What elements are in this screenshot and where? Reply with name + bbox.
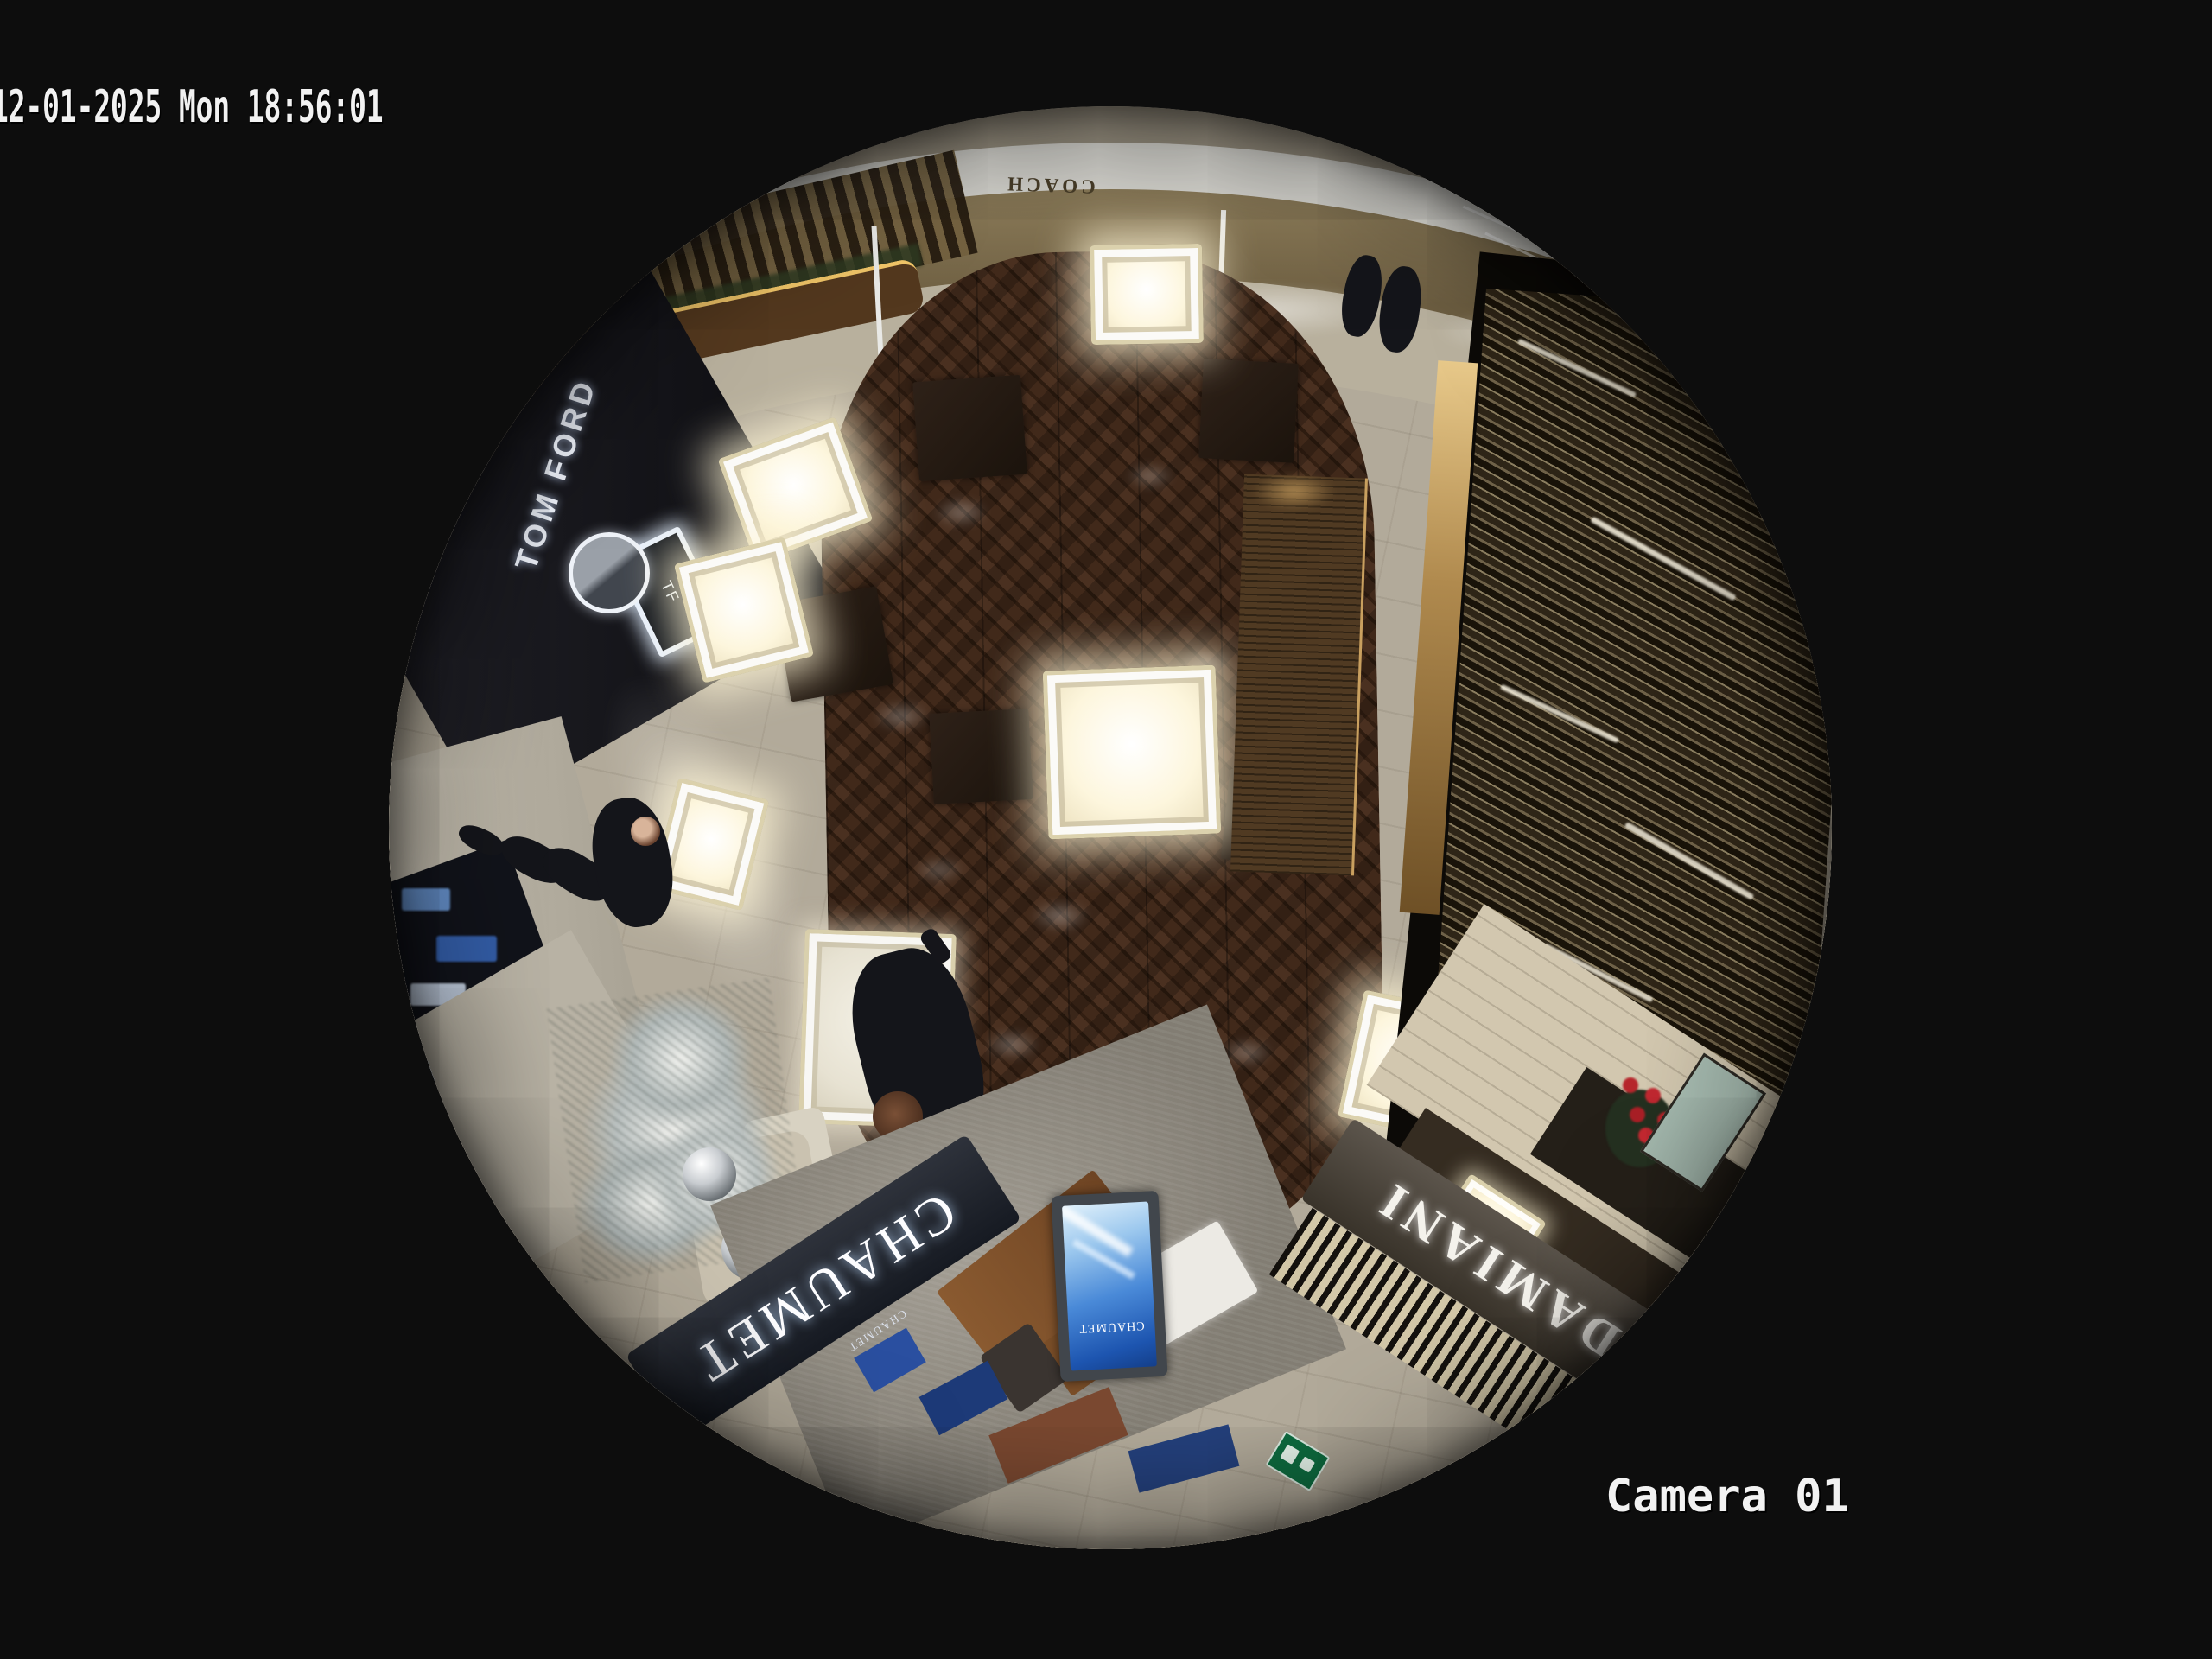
chaumet-digital-kiosk: CHAUMET — [1051, 1191, 1167, 1382]
floor-reflection — [873, 701, 930, 732]
kiosk-screen: CHAUMET — [1062, 1202, 1157, 1371]
display-case-top — [1090, 244, 1204, 345]
exit-sign-pictogram — [1299, 1456, 1315, 1472]
timestamp-overlay: 12-01-2025 Mon 18:56:01 — [0, 85, 384, 130]
floor-reflection — [933, 497, 988, 528]
fisheye-camera-view: COACH TOM FORD TF — [389, 106, 1832, 1549]
coach-sign: COACH — [985, 169, 1116, 200]
floor-reflection — [1125, 462, 1175, 490]
shelf-glint — [493, 340, 501, 348]
floor-reflection — [1030, 899, 1090, 932]
display-case-center — [1043, 665, 1222, 840]
red-bloom — [1623, 1077, 1638, 1093]
silver-ornament-ball — [683, 1147, 736, 1201]
display-pedestal — [929, 709, 1033, 804]
exit-sign-pictogram — [1280, 1444, 1300, 1465]
round-mirror — [569, 532, 650, 613]
display-pedestal — [1198, 359, 1299, 463]
shelf-glint — [540, 322, 549, 331]
kiosk-wall-glow — [1253, 474, 1335, 510]
floor-reflection — [914, 856, 964, 884]
screen-sparkle — [1062, 1205, 1134, 1257]
wood-kiosk-wall — [1230, 474, 1368, 876]
attendant-head — [631, 817, 660, 846]
kiosk-chaumet-wordmark: CHAUMET — [1068, 1313, 1155, 1338]
floor-reflection — [983, 1029, 1040, 1060]
cctv-frame: 12-01-2025 Mon 18:56:01 COACH TOM FORD T… — [0, 0, 2212, 1659]
cosmetics-glow — [402, 888, 450, 911]
camera-label: Camera 01 — [1605, 1474, 1849, 1519]
shelf-glint — [449, 365, 460, 376]
cosmetics-glow — [436, 936, 497, 962]
display-pedestal — [912, 375, 1027, 481]
